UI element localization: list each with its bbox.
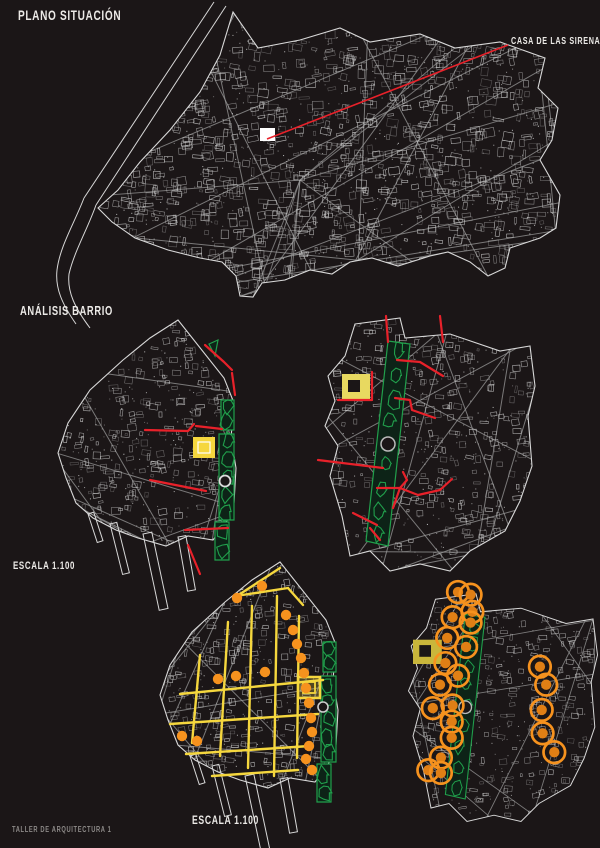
title-analisis-barrio: ANÁLISIS BARRIO bbox=[20, 304, 149, 318]
route-node-dot bbox=[301, 754, 311, 764]
route-node-dot bbox=[232, 593, 242, 603]
landmark-core bbox=[447, 716, 457, 726]
route-node-dot bbox=[292, 639, 302, 649]
maps-canvas bbox=[0, 0, 600, 848]
district-outline bbox=[58, 320, 236, 546]
landmark-core bbox=[541, 680, 551, 690]
title-plano-situacion: PLANO SITUACIÓN bbox=[18, 8, 161, 23]
route-node-dot bbox=[231, 671, 241, 681]
landmark-core bbox=[465, 617, 475, 627]
route-node-dot bbox=[296, 653, 306, 663]
route-node-dot bbox=[299, 668, 309, 678]
landmark-core bbox=[447, 700, 457, 710]
landmark-core bbox=[442, 633, 452, 643]
route-node-dot bbox=[281, 610, 291, 620]
scale-label-left-text: ESCALA 1.100 bbox=[13, 560, 75, 572]
plaza-circle bbox=[220, 476, 231, 487]
route-node-dot bbox=[301, 683, 311, 693]
highlight-street-line bbox=[318, 460, 383, 468]
route-node-dot bbox=[288, 625, 298, 635]
landmark-core bbox=[428, 703, 438, 713]
pier-outline bbox=[88, 512, 103, 542]
highlight-street-line bbox=[232, 373, 235, 395]
site-marker bbox=[419, 645, 431, 657]
route-node-dot bbox=[304, 741, 314, 751]
landmark-core bbox=[537, 705, 547, 715]
analisis-map-2-alameda bbox=[318, 316, 539, 576]
highlight-street-line bbox=[440, 316, 443, 342]
plaza-circle bbox=[381, 437, 395, 451]
pier-outline bbox=[143, 532, 168, 610]
scale-label-bottom-text: ESCALA 1.100 bbox=[192, 814, 259, 827]
title-plano-situacion-text: PLANO SITUACIÓN bbox=[18, 8, 121, 23]
route-node-dot bbox=[304, 698, 314, 708]
scale-label-bottom: ESCALA 1.100 bbox=[192, 814, 285, 827]
route-node-dot bbox=[213, 674, 223, 684]
analisis-map-3-recorridos bbox=[160, 561, 344, 848]
route-node-dot bbox=[307, 727, 317, 737]
site-marker bbox=[348, 380, 360, 392]
title-analisis-barrio-text: ANÁLISIS BARRIO bbox=[20, 304, 113, 318]
route-node-dot bbox=[306, 713, 316, 723]
river-line bbox=[84, 2, 214, 198]
plano-situacion-map bbox=[57, 2, 570, 328]
credit-taller-arquitectura: TALLER DE ARQUITECTURA 1 bbox=[12, 826, 150, 835]
route-node-dot bbox=[260, 667, 270, 677]
route-node-dot bbox=[307, 765, 317, 775]
route-node-dot bbox=[192, 736, 202, 746]
landmark-core bbox=[447, 733, 457, 743]
site-marker bbox=[193, 437, 215, 458]
pier-outline bbox=[178, 536, 195, 592]
district-outline bbox=[98, 12, 560, 297]
route-node-dot bbox=[257, 581, 267, 591]
landmark-core bbox=[453, 671, 463, 681]
pier-outline bbox=[190, 754, 205, 784]
landmark-core bbox=[447, 612, 457, 622]
analisis-map-4-hitos bbox=[409, 581, 600, 827]
pier-outline bbox=[212, 764, 231, 816]
landmark-core bbox=[440, 658, 450, 668]
highlight-street-line bbox=[196, 426, 222, 429]
landmark-core bbox=[549, 747, 559, 757]
landmark-core bbox=[435, 680, 445, 690]
highlight-street-line bbox=[205, 345, 232, 370]
plaza-circle bbox=[318, 702, 328, 712]
river-line bbox=[96, 6, 226, 205]
annotation-casa-text: CASA DE LAS SIRENAS bbox=[511, 36, 600, 47]
landmark-core bbox=[461, 642, 471, 652]
landmark-core bbox=[436, 768, 446, 778]
landmark-core bbox=[465, 590, 475, 600]
annotation-casa-de-las-sirenas: CASA DE LAS SIRENAS bbox=[511, 36, 600, 47]
scale-label-left: ESCALA 1.100 bbox=[13, 560, 99, 572]
landmark-core bbox=[535, 662, 545, 672]
credit-text: TALLER DE ARQUITECTURA 1 bbox=[12, 826, 112, 835]
route-node-dot bbox=[177, 731, 187, 741]
landmark-core bbox=[537, 728, 547, 738]
